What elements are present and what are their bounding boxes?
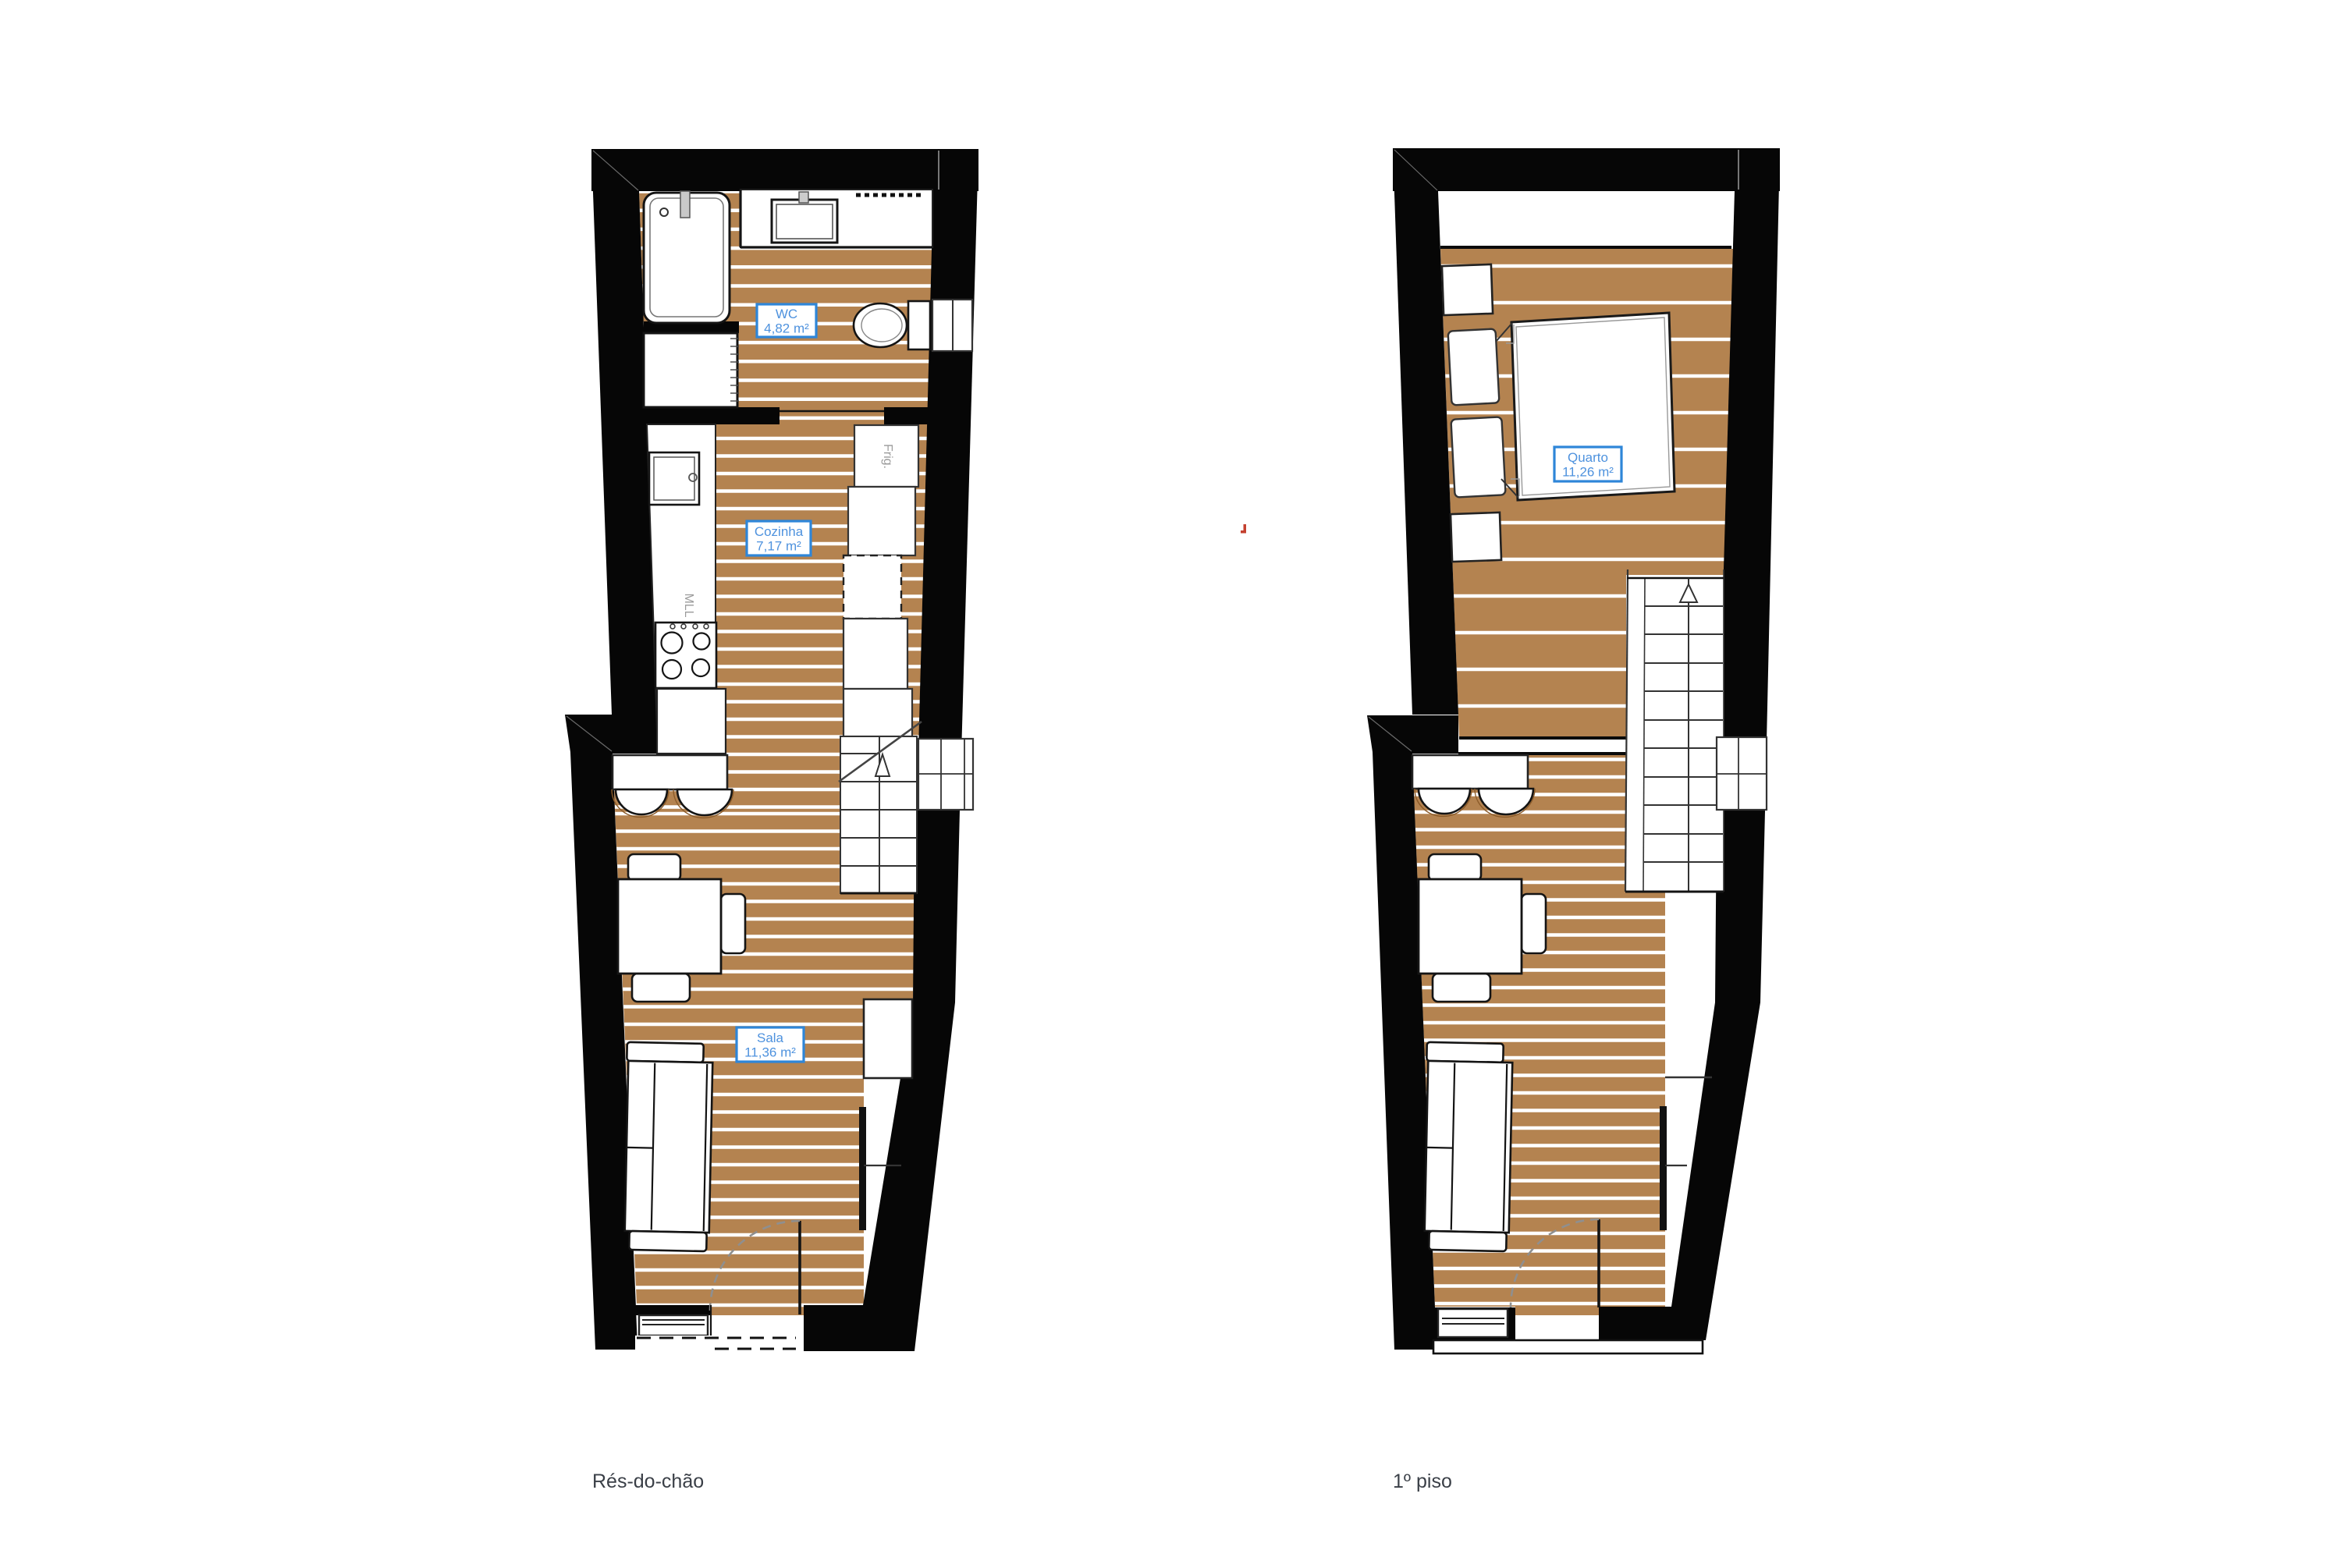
svg-text:11,26 m²: 11,26 m² [1562,465,1614,480]
svg-text:WC: WC [776,307,797,321]
svg-text:Sala: Sala [757,1031,784,1045]
svg-text:Quarto: Quarto [1568,450,1608,465]
svg-text:1º piso: 1º piso [1393,1470,1452,1492]
svg-text:Frig.: Frig. [881,444,894,469]
svg-text:Cozinha: Cozinha [755,524,804,539]
svg-text:4,82 m²: 4,82 m² [764,321,809,336]
svg-text:7,17 m²: 7,17 m² [756,539,801,554]
svg-text:11,36 m²: 11,36 m² [744,1045,796,1060]
svg-text:MLL: MLL [682,593,695,617]
svg-text:Rés-do-chão: Rés-do-chão [592,1470,704,1492]
